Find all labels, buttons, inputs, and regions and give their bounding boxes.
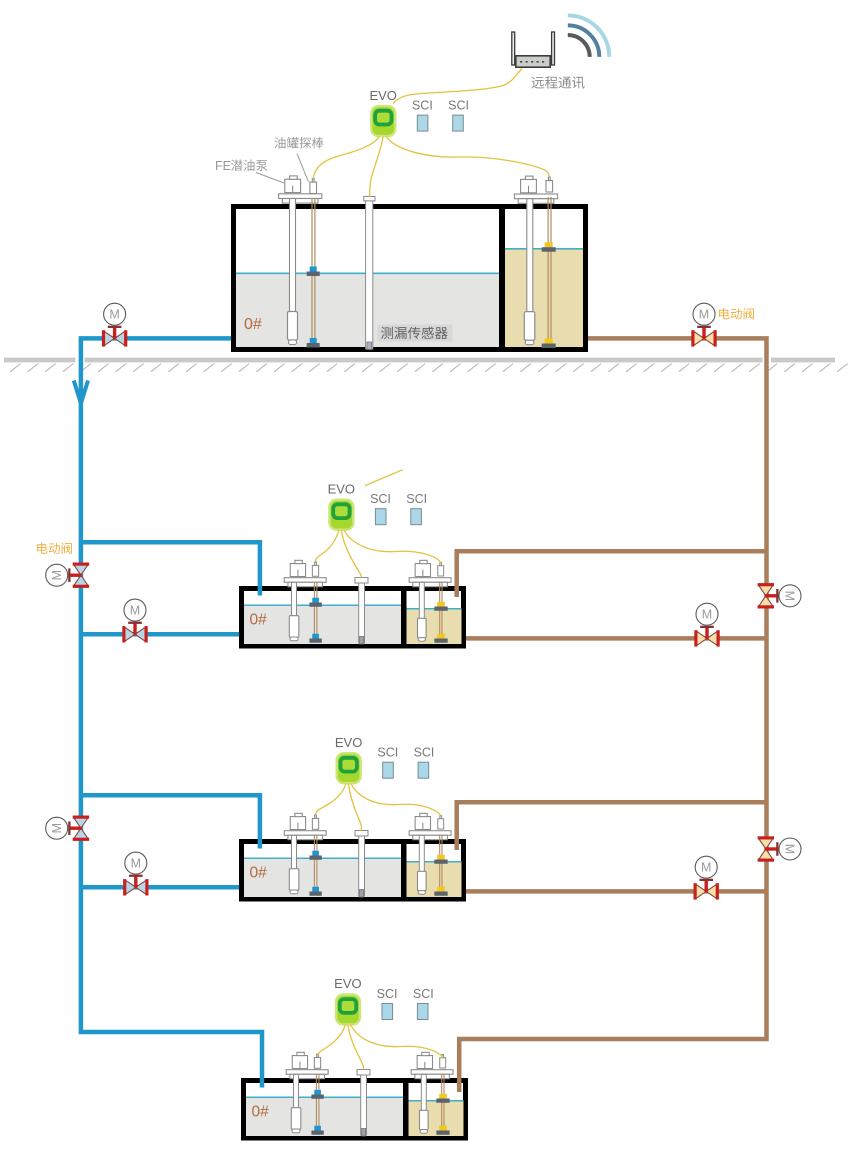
svg-text:FE: FE <box>215 159 231 173</box>
svg-text:0#: 0# <box>244 316 262 333</box>
